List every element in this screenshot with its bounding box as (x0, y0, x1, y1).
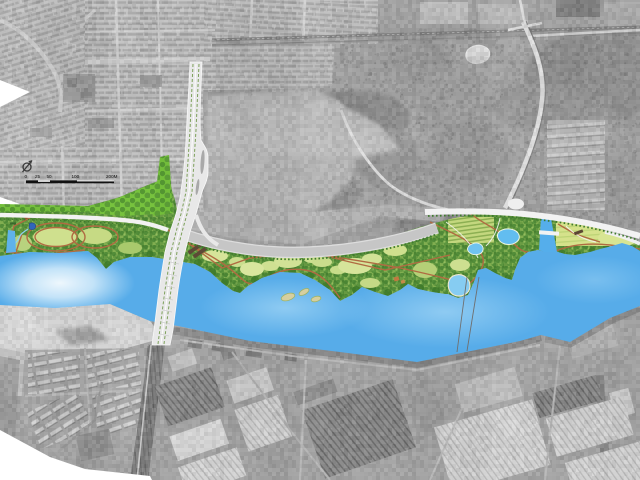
svg-text:50: 50 (47, 174, 53, 179)
svg-text:200M: 200M (106, 174, 118, 179)
svg-text:0: 0 (25, 174, 28, 179)
svg-text:25: 25 (35, 174, 41, 179)
svg-text:100: 100 (72, 174, 80, 179)
